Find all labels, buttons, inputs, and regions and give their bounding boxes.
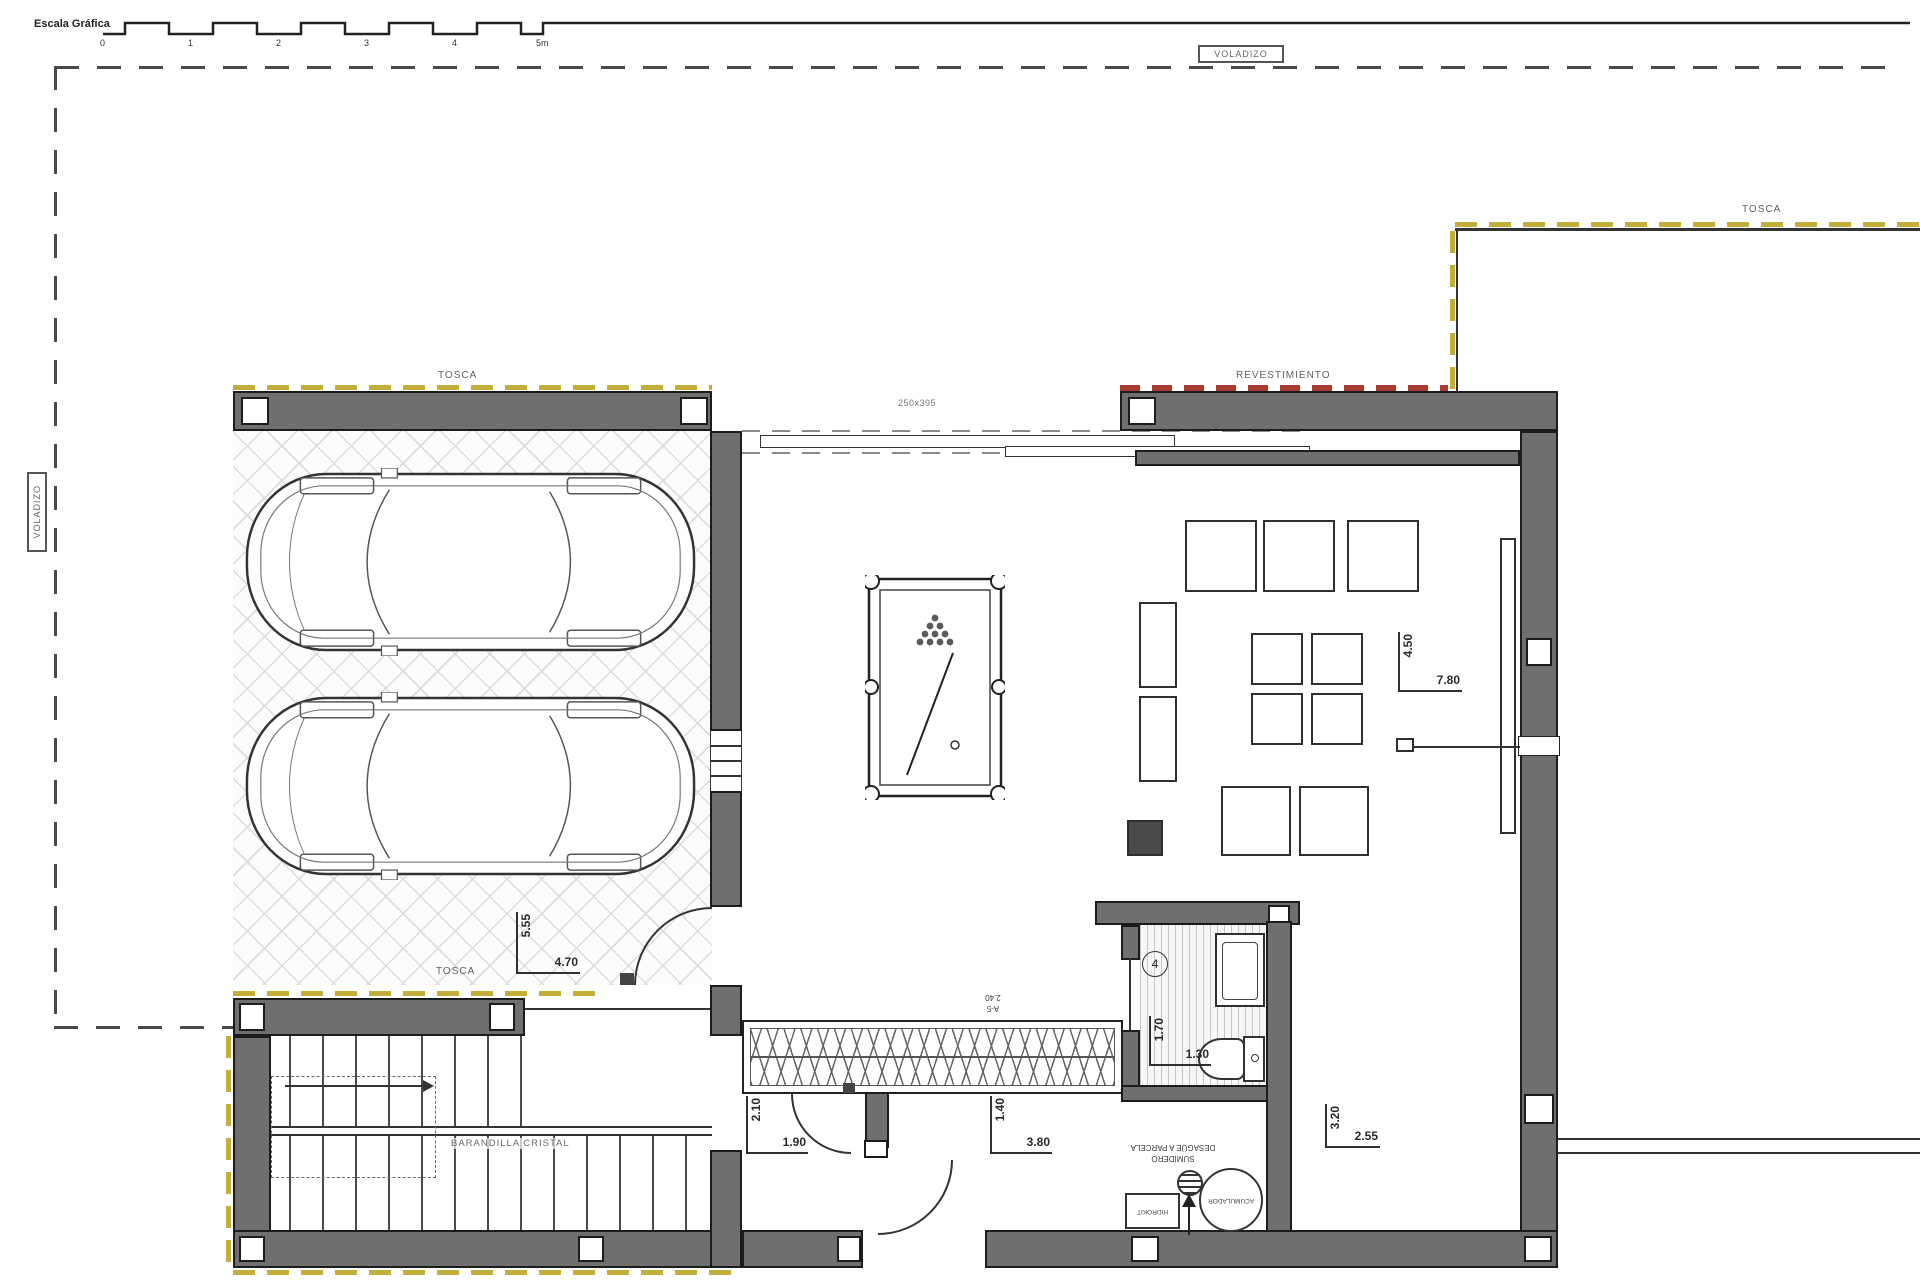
stair-room-bottom-dash	[233, 1270, 742, 1275]
drain-line2: DESAGÜE A PARCELA	[1098, 1142, 1248, 1153]
armchair	[1347, 520, 1419, 592]
vent-grille-midline	[750, 1056, 1115, 1058]
dimension-value-horizontal: 2.55	[1355, 1129, 1378, 1143]
table-module	[1311, 693, 1363, 745]
drain-line1: SUMIDERO	[1098, 1153, 1248, 1164]
lounger	[1139, 602, 1177, 688]
voladizo-top-label: VOLADIZO	[1214, 49, 1268, 59]
barandilla-label: BARANDILLA CRISTAL	[448, 1138, 573, 1149]
stair-room-top-wall	[233, 998, 525, 1036]
right-wall	[1520, 431, 1558, 1268]
table-module	[1251, 633, 1303, 685]
tosca-terrace-line	[1455, 228, 1920, 231]
pillar	[239, 1236, 265, 1262]
drain-label: SUMIDERO DESAGÜE A PARCELA	[1098, 1142, 1248, 1164]
dimension-value-vertical: 2.10	[749, 1098, 763, 1121]
corridor-wall-upper	[710, 985, 742, 1036]
dimension-value-horizontal: 7.80	[1437, 673, 1460, 687]
scale-tick-1: 1	[188, 38, 193, 48]
pillar	[1526, 638, 1552, 666]
car-2	[243, 692, 698, 880]
stair-room-beam-line	[525, 1008, 710, 1010]
dimension-value-horizontal: 1.90	[783, 1135, 806, 1149]
pillar	[837, 1236, 861, 1262]
dimension-corridor: 1.40 3.80	[990, 1096, 1052, 1154]
drain-arrow-head	[1182, 1194, 1196, 1207]
revestimiento-label: REVESTIMIENTO	[1236, 370, 1331, 381]
tosca-garage-bottom-dash	[233, 991, 600, 996]
bathroom-left-wall-upper	[1121, 925, 1140, 960]
bathroom-door-leaf	[1129, 958, 1131, 1032]
pillar	[1131, 1236, 1159, 1262]
site-line-1	[1558, 1138, 1920, 1140]
pillar	[489, 1003, 515, 1031]
tosca-terrace-dash	[1455, 222, 1920, 227]
lounger	[1139, 696, 1177, 782]
floor-plan: Escala Gráfica 0 1 2 3 4 5m VOLADIZO VOL…	[0, 0, 1920, 1280]
tosca-terrace-dash-vert	[1450, 231, 1455, 391]
stair-direction-arrowhead	[423, 1080, 434, 1092]
pillar	[578, 1236, 604, 1262]
scale-tick-4: 4	[452, 38, 457, 48]
voladizo-left-label-box: VOLADIZO	[27, 472, 47, 552]
door-jamb	[843, 1083, 855, 1093]
drain-arrow-shaft	[1188, 1205, 1190, 1235]
tech-divider-wall	[1266, 921, 1292, 1232]
pillar	[1128, 397, 1156, 425]
tosca-terrace-line-vert	[1456, 231, 1458, 391]
dimension-garage: 5.55 4.70	[516, 912, 580, 974]
dimension-value-vertical: 1.70	[1152, 1018, 1166, 1041]
hydrokit-box: HIDROKIT	[1125, 1193, 1180, 1229]
vent-ref-line2: 2.40	[968, 992, 1018, 1003]
pillar	[241, 397, 269, 425]
sideboard	[1500, 538, 1516, 834]
dimension-value-horizontal: 3.80	[1027, 1135, 1050, 1149]
armchair	[1185, 520, 1257, 592]
garage-top-wall	[233, 391, 712, 431]
beam-size-label: 250x395	[898, 398, 936, 408]
radiator-line	[1398, 746, 1520, 748]
hydrokit-label: HIDROKIT	[1137, 1208, 1168, 1215]
pillar	[1524, 1236, 1552, 1262]
scale-tick-0: 0	[100, 38, 105, 48]
garage-right-wall-lower	[710, 791, 742, 907]
side-table-dark	[1127, 820, 1163, 856]
site-line-2	[1558, 1152, 1920, 1154]
accumulator-circle: ACUMULADOR	[1199, 1168, 1263, 1232]
tosca-garage-top-dash	[233, 385, 712, 390]
dimension-value-vertical: 5.55	[519, 914, 533, 937]
bathroom-left-wall-lower	[1121, 1030, 1140, 1092]
scale-tick-3: 3	[364, 38, 369, 48]
dimension-value-vertical: 3.20	[1328, 1106, 1342, 1129]
voladizo-left-label: VOLADIZO	[32, 485, 42, 539]
table-module	[1311, 633, 1363, 685]
right-wall-niche	[1518, 736, 1560, 756]
room-number-badge: 4	[1142, 951, 1168, 977]
armchair	[1263, 520, 1335, 592]
accumulator-label: ACUMULADOR	[1208, 1197, 1254, 1204]
bottom-wall-left	[233, 1230, 742, 1268]
living-top-wall	[1120, 391, 1558, 431]
table-module	[1251, 693, 1303, 745]
living-inner-wall-strip	[1135, 450, 1520, 466]
voladizo-top-label-box: VOLADIZO	[1198, 45, 1284, 63]
scale-tick-5m: 5m	[536, 38, 549, 48]
stair-room-left-dash	[226, 1036, 231, 1268]
garage-door-jamb	[620, 973, 634, 985]
dimension-value-horizontal: 1.30	[1186, 1047, 1209, 1061]
pillar	[680, 397, 708, 425]
dimension-value-vertical: 4.50	[1401, 634, 1415, 657]
dimension-living: 4.50 7.80	[1398, 632, 1462, 692]
tosca-garage-bottom-label: TOSCA	[436, 966, 475, 977]
room-number: 4	[1152, 957, 1159, 971]
tosca-garage-top-label: TOSCA	[438, 370, 477, 381]
cue-ball	[951, 741, 959, 749]
dimension-value-horizontal: 4.70	[555, 955, 578, 969]
dimension-value-vertical: 1.40	[993, 1098, 1007, 1121]
bottom-wall-right	[985, 1230, 1558, 1268]
scale-bar	[0, 0, 1920, 60]
pillar	[239, 1003, 265, 1031]
vent-ref-label: A-5 2.40	[968, 992, 1018, 1014]
voladizo-dash-top	[55, 66, 1900, 69]
scale-tick-2: 2	[276, 38, 281, 48]
garage-right-wall-upper	[710, 431, 742, 731]
vent-ref-line1: A-5	[968, 1003, 1018, 1014]
hall-door-arc-bottom	[878, 1160, 953, 1235]
voladizo-dash-bottom-stub	[54, 1026, 234, 1029]
bathroom-sink	[1215, 933, 1265, 1007]
billiard-table	[865, 575, 1005, 800]
pillar	[1524, 1094, 1554, 1124]
corridor-wall-lower	[710, 1150, 742, 1268]
radiator-box	[1396, 738, 1414, 752]
stair-landing-dashed	[271, 1076, 436, 1178]
pillar	[864, 1140, 888, 1158]
garage-window	[710, 731, 742, 791]
stair-direction-arrow	[285, 1085, 423, 1087]
dimension-bathroom: 1.70 1.30	[1149, 1016, 1211, 1066]
car-1	[243, 468, 698, 656]
dimension-store: 3.20 2.55	[1325, 1104, 1380, 1148]
tosca-terrace-label: TOSCA	[1742, 204, 1781, 215]
armchair	[1299, 786, 1369, 856]
voladizo-dash-left	[54, 66, 57, 1028]
armchair	[1221, 786, 1291, 856]
